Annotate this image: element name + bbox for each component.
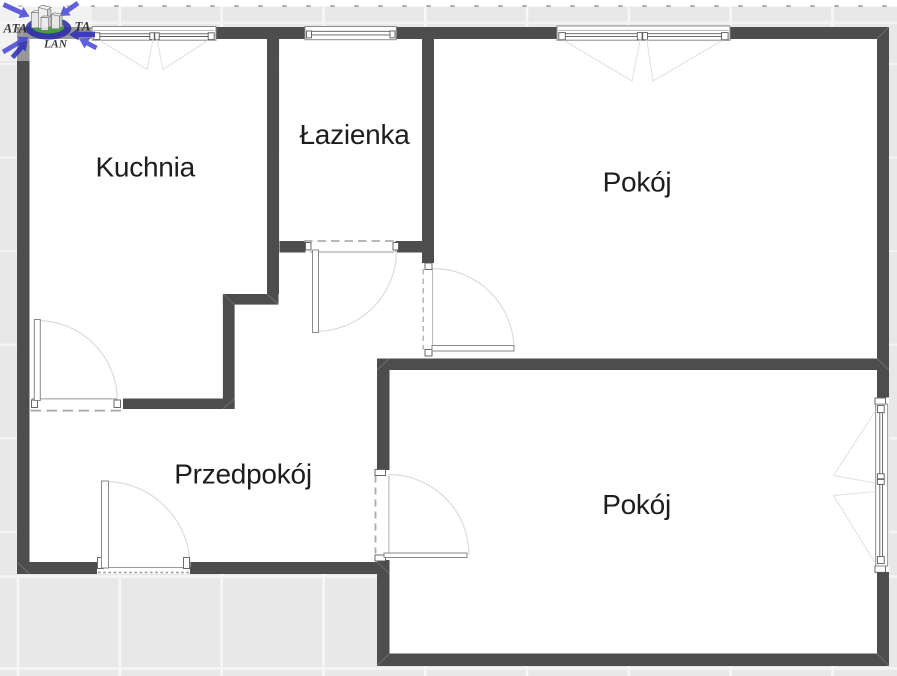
svg-text:Pokój: Pokój bbox=[603, 166, 672, 197]
svg-text:Pokój: Pokój bbox=[602, 489, 671, 520]
svg-text:ATA: ATA bbox=[3, 20, 28, 35]
svg-text:Kuchnia: Kuchnia bbox=[95, 152, 195, 183]
svg-text:Przedpokój: Przedpokój bbox=[174, 459, 312, 490]
svg-text:LAN: LAN bbox=[43, 39, 68, 51]
svg-text:Łazienka: Łazienka bbox=[299, 119, 410, 150]
svg-text:TA: TA bbox=[75, 19, 91, 34]
